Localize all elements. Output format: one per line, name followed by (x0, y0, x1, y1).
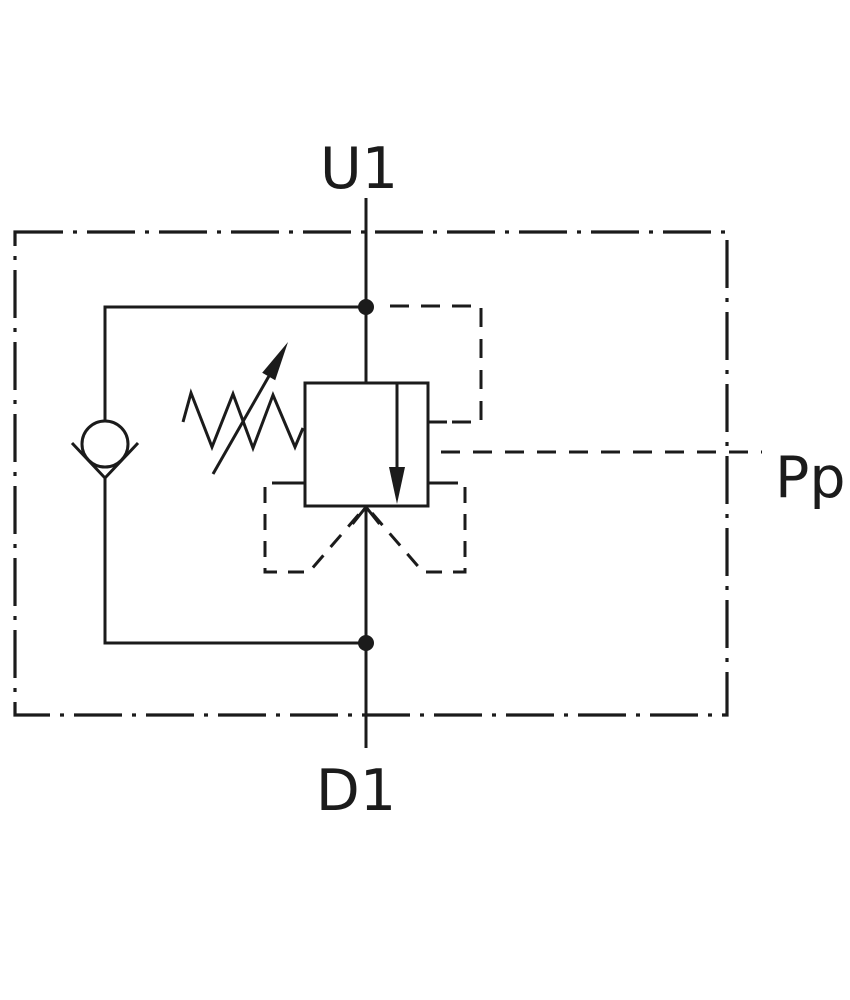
d1-port-label: D1 (316, 758, 396, 824)
port-pilot: Pp (441, 445, 846, 511)
junction-dot-bottom (358, 635, 374, 651)
port-downstream: D1 (316, 506, 396, 824)
port-upstream: U1 (320, 136, 398, 383)
valve-body-square (305, 383, 428, 506)
pp-port-label: Pp (775, 445, 846, 511)
vent-dashes-left (265, 483, 360, 572)
junction-dot-top (358, 299, 374, 315)
internal-pilot-dashes (390, 306, 481, 422)
pilot-line-internal (390, 306, 481, 422)
adjustable-spring (183, 342, 303, 474)
adjustment-arrow-head-icon (262, 342, 288, 380)
check-valve-branch (105, 307, 366, 643)
check-valve (72, 421, 138, 478)
main-valve (305, 383, 428, 524)
flow-arrow-head-icon (389, 467, 405, 504)
hydraulic-schematic: U1 D1 (0, 0, 850, 1000)
vent-dashes-right (372, 483, 465, 572)
schematic-canvas: U1 D1 (0, 0, 850, 1000)
bypass-branch-lines (105, 307, 366, 643)
u1-port-label: U1 (320, 136, 398, 202)
